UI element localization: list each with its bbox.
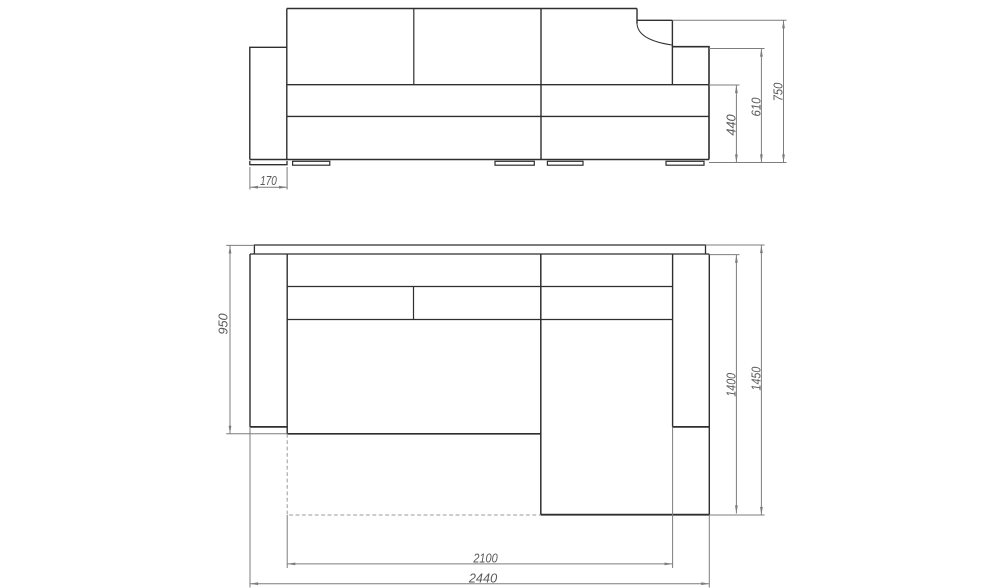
svg-text:950: 950 <box>215 313 230 335</box>
svg-text:2440: 2440 <box>468 570 498 585</box>
svg-text:1400: 1400 <box>723 372 738 396</box>
svg-text:440: 440 <box>723 114 738 136</box>
svg-text:750: 750 <box>770 82 785 101</box>
svg-text:170: 170 <box>260 173 277 188</box>
svg-text:1450: 1450 <box>748 366 763 390</box>
svg-text:2100: 2100 <box>473 551 499 566</box>
svg-text:610: 610 <box>748 97 763 117</box>
